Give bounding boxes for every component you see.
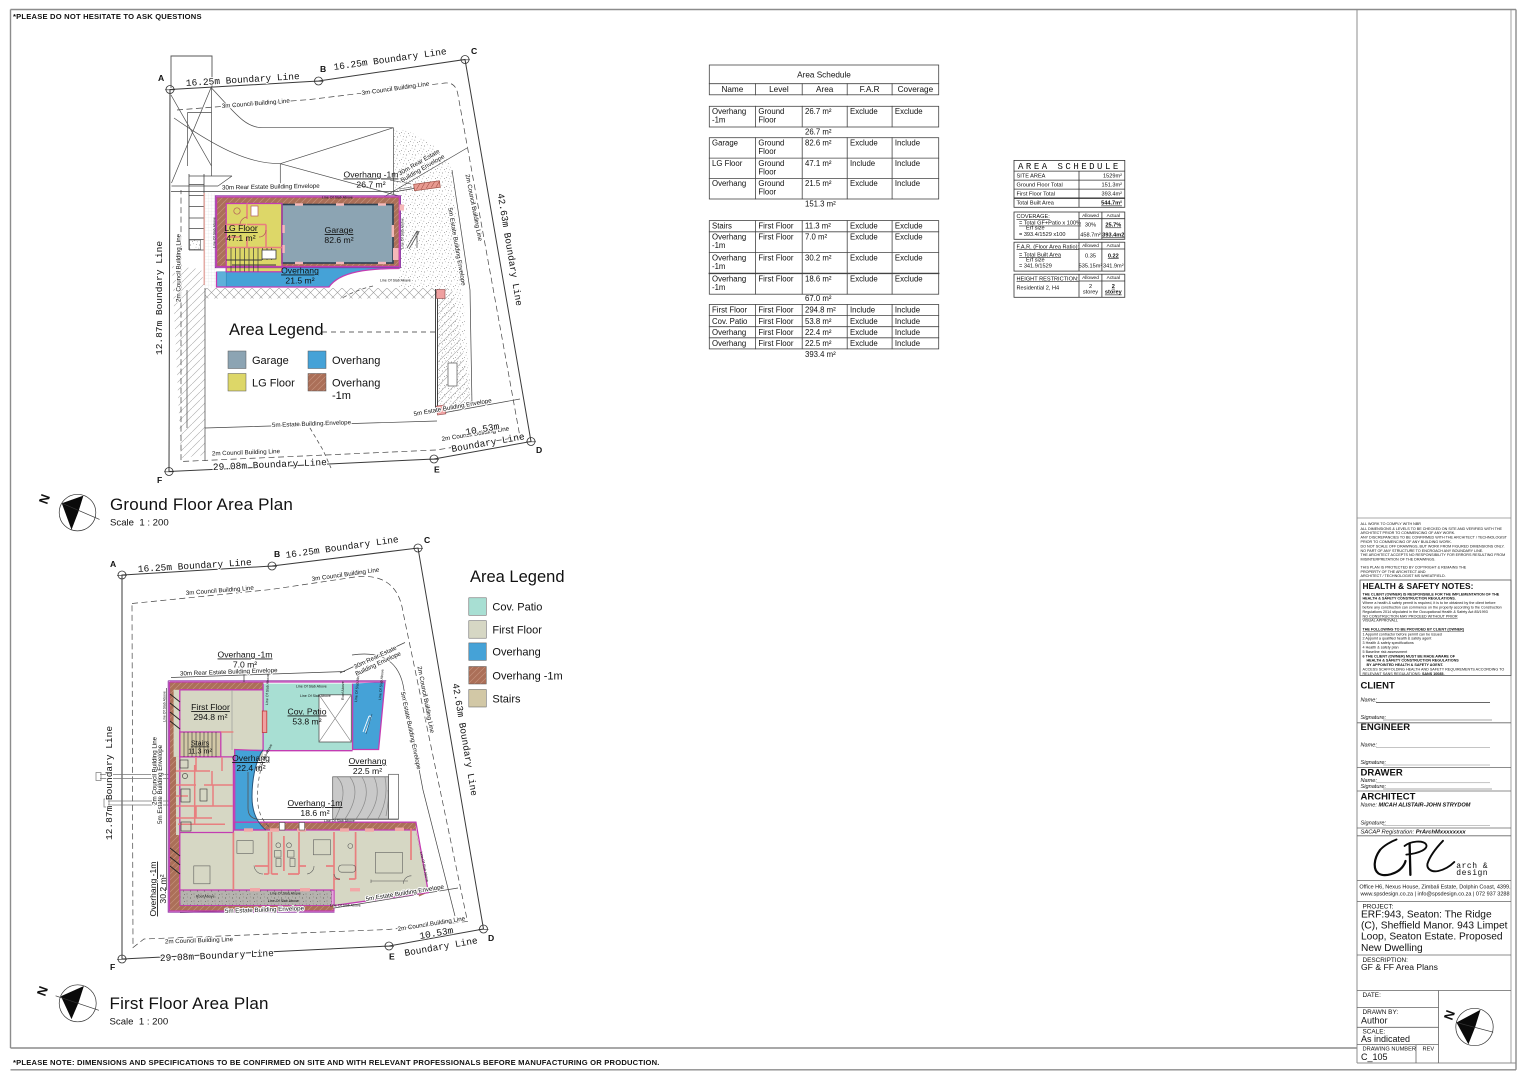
- svg-text:Overhang -1m: Overhang -1m: [218, 650, 273, 660]
- svg-text:Exclude: Exclude: [850, 328, 878, 337]
- svg-text:2m Council Building Line: 2m Council Building Line: [176, 233, 183, 302]
- svg-text:Signature:: Signature:: [1361, 821, 1387, 827]
- svg-text:D: D: [536, 445, 542, 455]
- svg-text:ARCHITECT / TECHNOLOGIST MS WH: ARCHITECT / TECHNOLOGIST MS WHEATFIELD.: [1361, 574, 1446, 578]
- svg-text:F.A.R. (Floor Area Ratio):: F.A.R. (Floor Area Ratio):: [1017, 244, 1080, 250]
- svg-text:Include: Include: [895, 179, 920, 188]
- svg-text:Actual: Actual: [1107, 275, 1120, 281]
- svg-text:Overhang -1m: Overhang -1m: [288, 798, 343, 808]
- svg-text:ANY DISCREPANCIES TO BE CONFIR: ANY DISCREPANCIES TO BE CONFIRMED WITH T…: [1361, 536, 1508, 540]
- svg-text:ARCHITECT: ARCHITECT: [1361, 792, 1416, 803]
- svg-text:25.7%: 25.7%: [1105, 223, 1121, 229]
- svg-text:SACAP Registration: PrArchMxxx: SACAP Registration: PrArchMxxxxxxxx: [1361, 830, 1467, 836]
- svg-text:Line Of Slab Above: Line Of Slab Above: [322, 195, 353, 199]
- svg-text:First Floor: First Floor: [758, 317, 793, 326]
- svg-text:HEALTH & SAFETY NOTES:: HEALTH & SAFETY NOTES:: [1363, 581, 1474, 591]
- svg-text:B: B: [274, 549, 280, 559]
- svg-text:HEALTH & SAFETY CONSTRUCTION R: HEALTH & SAFETY CONSTRUCTION REGULATIONS: [1367, 659, 1460, 663]
- svg-text:Garage: Garage: [252, 355, 289, 367]
- svg-text:As indicated: As indicated: [1361, 1034, 1410, 1044]
- svg-text:47.1 m²: 47.1 m²: [226, 233, 255, 243]
- svg-text:PRIOR TO COMMENCING OF ANY BUI: PRIOR TO COMMENCING OF ANY BUILDING WORK…: [1361, 540, 1452, 544]
- svg-text:Actual: Actual: [1107, 243, 1120, 249]
- svg-text:Exclude: Exclude: [895, 274, 923, 283]
- svg-text:Exclude: Exclude: [850, 233, 878, 242]
- svg-text:THE FOLLOWING TO BE PROVIDED B: THE FOLLOWING TO BE PROVIDED BY CLIENT (…: [1363, 628, 1465, 632]
- svg-text:*PLEASE NOTE: DIMENSIONS AND S: *PLEASE NOTE: DIMENSIONS AND SPECIFICATI…: [13, 1058, 660, 1067]
- svg-text:Floor: Floor: [758, 147, 776, 156]
- svg-text:HEALTH & SAFETY CONSTRUCTION R: HEALTH & SAFETY CONSTRUCTION REGULATIONS…: [1363, 597, 1456, 601]
- svg-text:THE CLIENT (OWNER) IS RESPONSI: THE CLIENT (OWNER) IS RESPONSIBLE FOR TH…: [1363, 592, 1500, 596]
- svg-text:Floor: Floor: [758, 116, 776, 125]
- svg-text:www.spsdesign.co.za | info@sps: www.spsdesign.co.za | info@spsdesign.co.…: [1359, 891, 1509, 897]
- svg-text:= 341.9/1529: = 341.9/1529: [1019, 263, 1052, 269]
- svg-text:Signature:: Signature:: [1361, 784, 1387, 790]
- svg-text:GF & FF Area Plans: GF & FF Area Plans: [1361, 962, 1438, 972]
- svg-text:0.35: 0.35: [1085, 253, 1096, 259]
- svg-text:Allowed: Allowed: [1082, 275, 1099, 281]
- svg-text:Scale 1 : 200: Scale 1 : 200: [110, 518, 169, 529]
- svg-text:MISINTERPRETATION OF THE DRAWI: MISINTERPRETATION OF THE DRAWINGS.: [1361, 558, 1436, 562]
- svg-text:Ground Floor Total: Ground Floor Total: [1017, 182, 1063, 188]
- svg-text:82.6 m²: 82.6 m²: [805, 138, 832, 147]
- svg-text:CLIENT: CLIENT: [1361, 681, 1396, 692]
- svg-text:22.5 m²: 22.5 m²: [805, 339, 832, 348]
- svg-text:THIS PLAN IS PROTECTED BY COPY: THIS PLAN IS PROTECTED BY COPYRIGHT & RE…: [1361, 565, 1467, 569]
- svg-text:Include: Include: [895, 306, 920, 315]
- svg-text:Exclude: Exclude: [850, 138, 878, 147]
- svg-text:Include: Include: [895, 339, 920, 348]
- svg-text:NO PART OF ANY STRUCTURE TO EN: NO PART OF ANY STRUCTURE TO ENCROACH ANY…: [1361, 549, 1484, 553]
- svg-text:First Floor: First Floor: [758, 253, 793, 262]
- svg-text:before any construction can co: before any construction can commence on …: [1363, 606, 1502, 610]
- svg-text:Actual: Actual: [1107, 213, 1120, 219]
- svg-text:-1m: -1m: [712, 262, 725, 271]
- svg-text:E: E: [434, 465, 440, 475]
- svg-text:11.3 m²: 11.3 m²: [188, 747, 212, 756]
- svg-text:535.15m²: 535.15m²: [1079, 263, 1103, 269]
- svg-text:Name: Name: [721, 85, 743, 94]
- svg-text:C_105: C_105: [1361, 1052, 1388, 1062]
- svg-text:Overhang -1m: Overhang -1m: [148, 862, 158, 917]
- svg-text:Loop, Seaton Estate. Proposed: Loop, Seaton Estate. Proposed: [1361, 932, 1503, 943]
- svg-text:Signature:: Signature:: [1361, 760, 1387, 766]
- svg-text:-1m: -1m: [712, 283, 725, 292]
- svg-text:47.1 m²: 47.1 m²: [805, 159, 832, 168]
- svg-text:Overhang -1m: Overhang -1m: [344, 170, 399, 180]
- svg-text:12.87m Boundary Line: 12.87m Boundary Line: [154, 241, 165, 355]
- svg-text:E: E: [389, 952, 395, 962]
- svg-text:Line Of Slab Above: Line Of Slab Above: [324, 819, 355, 823]
- svg-text:Line Of Slab Above: Line Of Slab Above: [268, 899, 299, 903]
- svg-text:Cov. Patio: Cov. Patio: [492, 602, 542, 614]
- svg-text:A: A: [158, 73, 164, 83]
- svg-text:*PLEASE DO NOT HESITATE TO ASK: *PLEASE DO NOT HESITATE TO ASK QUESTIONS: [13, 12, 202, 21]
- svg-text:-1m: -1m: [712, 116, 725, 125]
- svg-text:18.6 m²: 18.6 m²: [300, 808, 329, 818]
- svg-text:(C), Sheffield Manor. 943 Limp: (C), Sheffield Manor. 943 Limpet: [1361, 921, 1508, 932]
- svg-text:ALL WORK TO COMPLY WITH NBR: ALL WORK TO COMPLY WITH NBR: [1361, 522, 1422, 526]
- svg-text:Stairs: Stairs: [712, 222, 732, 231]
- svg-text:Line Of Slab Above: Line Of Slab Above: [300, 694, 331, 698]
- svg-text:294.8 m²: 294.8 m²: [805, 306, 836, 315]
- svg-text:ARCHITECT PRIOR TO COMMENCING: ARCHITECT PRIOR TO COMMENCING OF ANY WOR…: [1361, 531, 1456, 535]
- svg-text:REV: REV: [1423, 1047, 1435, 1053]
- svg-text:Line Of Slab Above: Line Of Slab Above: [163, 691, 167, 722]
- svg-text:First Floor: First Floor: [758, 222, 793, 231]
- svg-text:NO CONSTRUCTION MAY PROCEED WI: NO CONSTRUCTION MAY PROCEED WITHOUT PRIO…: [1363, 614, 1458, 618]
- svg-text:294.8 m²: 294.8 m²: [194, 712, 228, 722]
- svg-text:LG Floor: LG Floor: [224, 223, 258, 233]
- svg-text:0.22: 0.22: [1108, 253, 1119, 259]
- svg-text:26.7 m²: 26.7 m²: [805, 127, 832, 136]
- svg-text:First Floor: First Floor: [758, 306, 793, 315]
- svg-text:1 Appoint contractor before p: 1 Appoint contractor before permit can b…: [1363, 632, 1442, 636]
- svg-text:Overhang: Overhang: [332, 355, 380, 367]
- svg-text:Exclude: Exclude: [850, 339, 878, 348]
- svg-text:Include: Include: [895, 317, 920, 326]
- svg-text:Where a health & safety permit: Where a health & safety permit is requir…: [1363, 601, 1496, 605]
- svg-text:Erf size: Erf size: [1026, 226, 1045, 232]
- svg-text:151.3m²: 151.3m²: [1101, 182, 1122, 188]
- svg-text:First Floor: First Floor: [191, 702, 230, 712]
- svg-text:Exclude: Exclude: [895, 253, 923, 262]
- svg-text:Overhang: Overhang: [349, 756, 387, 766]
- svg-text:30%: 30%: [1085, 223, 1096, 229]
- svg-text:3 Health & safety specificati: 3 Health & safety specifications: [1363, 641, 1414, 645]
- svg-text:Area: Area: [816, 85, 834, 94]
- svg-text:F: F: [157, 475, 162, 485]
- svg-text:B: B: [320, 64, 326, 74]
- svg-text:Signature:: Signature:: [1361, 715, 1387, 721]
- svg-text:Name:: Name:: [1361, 743, 1378, 749]
- svg-text:Exclude: Exclude: [850, 179, 878, 188]
- svg-text:53.8 m²: 53.8 m²: [805, 317, 832, 326]
- svg-text:30.2 m²: 30.2 m²: [805, 253, 832, 262]
- svg-text:ENGINEER: ENGINEER: [1361, 722, 1411, 733]
- svg-text:Name:: Name:: [1361, 698, 1378, 704]
- svg-text:D: D: [488, 933, 494, 943]
- svg-text:DO NOT SCALE OFF DRAWINGS, BUT: DO NOT SCALE OFF DRAWINGS, BUT WORK FROM…: [1361, 544, 1505, 548]
- svg-text:PROPERTY OF THE ARCHITECT AND: PROPERTY OF THE ARCHITECT AND: [1361, 570, 1426, 574]
- svg-text:393.4m2: 393.4m2: [1102, 233, 1124, 239]
- svg-text:53.8 m²: 53.8 m²: [292, 717, 321, 727]
- svg-text:First Floor: First Floor: [758, 233, 793, 242]
- svg-text:7.0 m²: 7.0 m²: [805, 233, 827, 242]
- svg-text:A: A: [110, 559, 116, 569]
- svg-text:458.7m²: 458.7m²: [1080, 233, 1101, 239]
- svg-text:Include: Include: [850, 159, 875, 168]
- svg-text:Area Legend: Area Legend: [229, 321, 324, 339]
- svg-text:First Floor: First Floor: [758, 328, 793, 337]
- svg-text:Include: Include: [895, 328, 920, 337]
- svg-text:Scale 1 : 200: Scale 1 : 200: [110, 1017, 169, 1028]
- svg-text:Overhang: Overhang: [492, 647, 540, 659]
- svg-text:Exclude: Exclude: [850, 222, 878, 231]
- svg-text:First Floor: First Floor: [712, 306, 747, 315]
- svg-text:Overhang: Overhang: [712, 179, 746, 188]
- svg-text:Roof Above: Roof Above: [196, 895, 215, 899]
- svg-text:18.6 m²: 18.6 m²: [805, 274, 832, 283]
- svg-text:Allowed: Allowed: [1082, 213, 1099, 219]
- svg-text:Allowed: Allowed: [1082, 243, 1099, 249]
- svg-text:Exclude: Exclude: [895, 233, 923, 242]
- svg-text:ERF:943, Seaton: The Ridge: ERF:943, Seaton: The Ridge: [1361, 910, 1492, 921]
- svg-text:SITE AREA: SITE AREA: [1017, 173, 1046, 179]
- svg-text:New Dwelling: New Dwelling: [1361, 943, 1423, 954]
- svg-text:AREA SCHEDULE: AREA SCHEDULE: [1018, 162, 1121, 172]
- svg-text:= 393.4/1529 x100: = 393.4/1529 x100: [1019, 232, 1066, 238]
- svg-text:Overhang: Overhang: [332, 378, 380, 390]
- svg-text:First Floor: First Floor: [492, 625, 542, 637]
- svg-text:First Floor Area Plan: First Floor Area Plan: [110, 994, 269, 1013]
- svg-text:Floor: Floor: [758, 188, 776, 197]
- svg-text:11.3 m²: 11.3 m²: [805, 222, 831, 231]
- svg-text:Area Legend: Area Legend: [470, 568, 565, 586]
- svg-text:Include: Include: [850, 306, 875, 315]
- svg-text:storey: storey: [1105, 290, 1123, 296]
- svg-text:82.6 m²: 82.6 m²: [324, 235, 353, 245]
- svg-text:Garage: Garage: [325, 225, 354, 235]
- svg-text:Overhang: Overhang: [712, 328, 746, 337]
- svg-text:COVERAGE:: COVERAGE:: [1017, 214, 1051, 220]
- svg-text:C: C: [471, 46, 477, 56]
- svg-text:21.5 m²: 21.5 m²: [805, 179, 832, 188]
- svg-text:Exclude: Exclude: [850, 274, 878, 283]
- svg-text:67.0 m²: 67.0 m²: [805, 294, 832, 303]
- svg-text:1529m²: 1529m²: [1103, 173, 1122, 179]
- svg-text:Line Of Slab Above: Line Of Slab Above: [380, 279, 411, 283]
- svg-text:Include: Include: [895, 159, 920, 168]
- svg-text:Regulations 2014 stipulated in: Regulations 2014 stipulated in the Occup…: [1363, 610, 1488, 614]
- svg-text:-1m: -1m: [332, 390, 351, 402]
- svg-text:22.5 m²: 22.5 m²: [353, 766, 382, 776]
- svg-text:Coverage: Coverage: [898, 85, 934, 94]
- svg-text:ALL DIMENSIONS & LEVELS TO BE: ALL DIMENSIONS & LEVELS TO BE CHECKED ON…: [1361, 527, 1503, 531]
- svg-text:THE ARCHITECT ACCEPTS NO RESPO: THE ARCHITECT ACCEPTS NO RESPONSIBILITY …: [1361, 553, 1506, 557]
- svg-text:F.A.R: F.A.R: [860, 85, 880, 94]
- svg-text:Line Of Slab Above: Line Of Slab Above: [401, 218, 405, 249]
- svg-text:-1m: -1m: [712, 241, 725, 250]
- svg-text:393.4m²: 393.4m²: [1101, 191, 1122, 197]
- svg-text:LG Floor: LG Floor: [252, 378, 295, 390]
- svg-text:RELEVANT SANS REGULATIONS: SAN: RELEVANT SANS REGULATIONS: SANS 10085.: [1363, 672, 1445, 676]
- svg-text:Name: MICAH ALISTAIR-JOHN STRY: Name: MICAH ALISTAIR-JOHN STRYDOM: [1361, 803, 1471, 809]
- svg-text:26.7 m²: 26.7 m²: [356, 180, 385, 190]
- svg-text:First Floor: First Floor: [758, 339, 793, 348]
- svg-text:30.2 m²: 30.2 m²: [158, 874, 168, 903]
- svg-text:12.87m Boundary Line: 12.87m Boundary Line: [104, 726, 115, 840]
- svg-text:Author: Author: [1361, 1015, 1388, 1025]
- svg-text:Level: Level: [769, 85, 789, 94]
- svg-text:LG Floor: LG Floor: [712, 159, 743, 168]
- svg-text:2 Appoint a qualified health: 2 Appoint a qualified health & safety ag…: [1363, 637, 1432, 641]
- svg-text:26.7 m²: 26.7 m²: [805, 107, 832, 116]
- svg-text:design: design: [1456, 869, 1488, 878]
- svg-text:341.9m²: 341.9m²: [1103, 263, 1124, 269]
- svg-text:22.4 m²: 22.4 m²: [805, 328, 832, 337]
- svg-text:5m Estate Building Envelope: 5m Estate Building Envelope: [157, 744, 164, 824]
- svg-text:Include: Include: [895, 138, 920, 147]
- svg-text:First Floor Total: First Floor Total: [1017, 191, 1055, 197]
- svg-text:Cov. Patio: Cov. Patio: [287, 707, 326, 717]
- svg-text:Total Built Area: Total Built Area: [1017, 201, 1055, 207]
- svg-text:Line Of Slab Above: Line Of Slab Above: [270, 892, 301, 896]
- svg-text:Overhang: Overhang: [712, 339, 746, 348]
- svg-text:Exclude: Exclude: [850, 107, 878, 116]
- svg-text:Office H6, Nexus House, Zimbal: Office H6, Nexus House, Zimbali Estate, …: [1359, 884, 1511, 890]
- svg-text:Name:: Name:: [1361, 778, 1378, 784]
- svg-text:544.7m²: 544.7m²: [1101, 200, 1122, 207]
- svg-text:4 Health & safety plan: 4 Health & safety plan: [1363, 646, 1399, 650]
- svg-text:Exclude: Exclude: [850, 253, 878, 262]
- svg-text:VISUAL APPROVALL: VISUAL APPROVALL: [1363, 619, 1398, 623]
- svg-text:Floor: Floor: [758, 167, 776, 176]
- svg-text:151.3 m²: 151.3 m²: [805, 200, 836, 209]
- svg-text:Garage: Garage: [712, 138, 738, 147]
- svg-text:DATE:: DATE:: [1363, 992, 1382, 999]
- svg-text:Line Of Slab Above: Line Of Slab Above: [296, 684, 327, 688]
- svg-text:C: C: [424, 535, 430, 545]
- svg-text:Exclude: Exclude: [895, 222, 923, 231]
- svg-text:21.5 m²: 21.5 m²: [285, 276, 314, 286]
- svg-text:Cov. Patio: Cov. Patio: [712, 317, 748, 326]
- svg-text:Line Of Slab Above: Line Of Slab Above: [213, 217, 217, 248]
- svg-text:Exclude: Exclude: [895, 107, 923, 116]
- svg-text:6 THE CLIENT (OWNER) MUST BE: 6 THE CLIENT (OWNER) MUST BE MADE AWARE …: [1363, 654, 1456, 658]
- svg-text:Exclude: Exclude: [850, 317, 878, 326]
- svg-text:5 Baseline risk assessment: 5 Baseline risk assessment: [1363, 650, 1408, 654]
- svg-text:Area Schedule: Area Schedule: [797, 71, 851, 80]
- svg-text:Overhang -1m: Overhang -1m: [492, 670, 562, 682]
- svg-text:Line Of Slab Above: Line Of Slab Above: [330, 904, 361, 908]
- svg-text:BY APPOINTED HEALTH & SAFETY A: BY APPOINTED HEALTH & SAFETY AGENT.: [1367, 663, 1444, 667]
- svg-text:HEIGHT RESTRICTION:: HEIGHT RESTRICTION:: [1017, 276, 1079, 282]
- svg-text:storey: storey: [1083, 290, 1098, 296]
- svg-text:393.4 m²: 393.4 m²: [805, 350, 836, 359]
- svg-text:Roof Above: Roof Above: [341, 681, 345, 700]
- svg-text:Ground Floor Area Plan: Ground Floor Area Plan: [110, 495, 293, 514]
- svg-text:First Floor: First Floor: [758, 274, 793, 283]
- svg-text:Stairs: Stairs: [492, 693, 521, 705]
- svg-text:F: F: [110, 962, 115, 972]
- svg-text:Overhang: Overhang: [281, 266, 319, 276]
- svg-text:Residential 2, H4: Residential 2, H4: [1017, 285, 1060, 291]
